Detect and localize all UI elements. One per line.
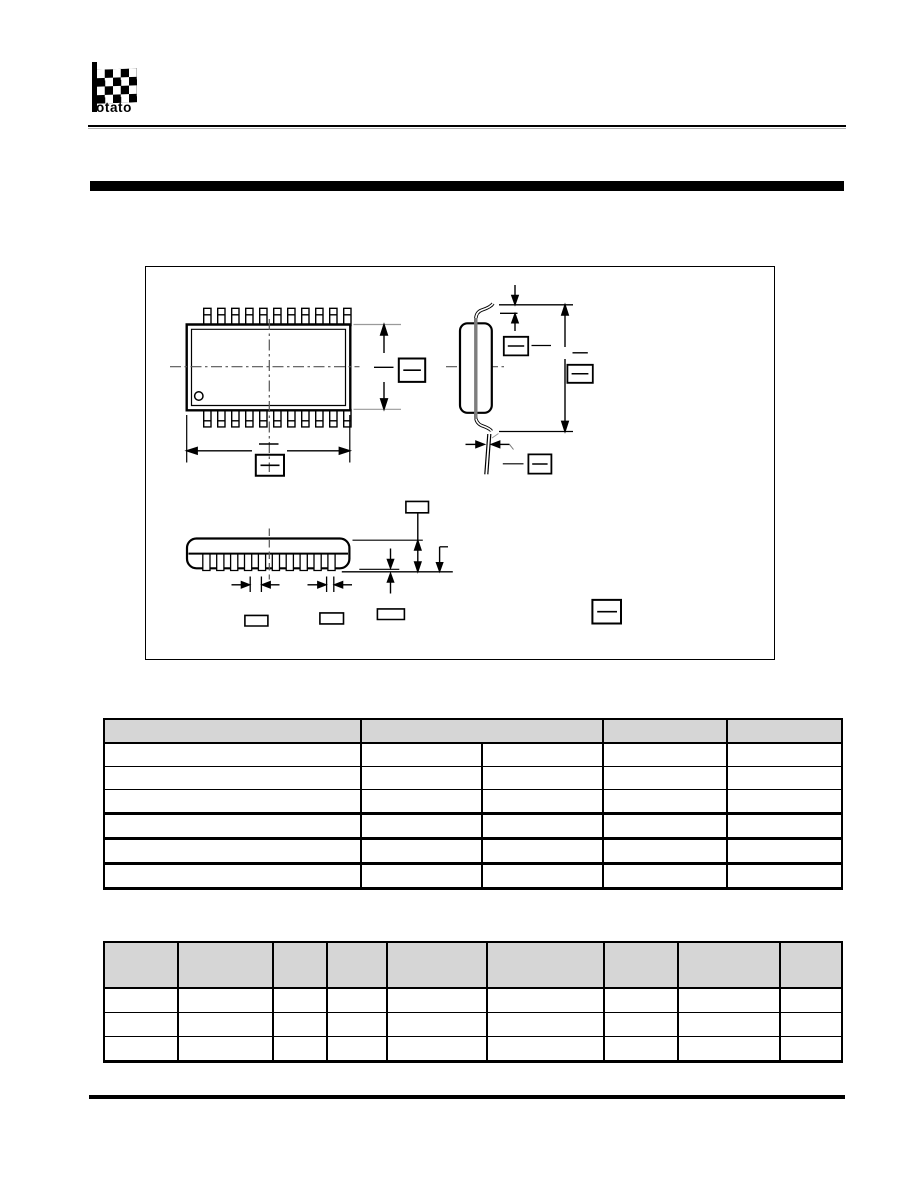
table-cell — [327, 988, 387, 1013]
table-row — [104, 1037, 842, 1062]
table-cell — [104, 814, 361, 839]
dim-body-thickness — [437, 547, 449, 572]
package-top-view — [170, 308, 360, 472]
arrowhead-left — [335, 582, 343, 588]
header-rule-shadow — [88, 128, 846, 129]
table-cell — [361, 743, 482, 767]
arrowhead-left — [187, 447, 198, 454]
table-cell — [678, 988, 780, 1013]
dim-label-box — [320, 613, 344, 624]
table-cell — [104, 767, 361, 790]
table-cell — [482, 839, 603, 864]
arrowhead-up — [562, 305, 569, 315]
table-row — [104, 839, 842, 864]
arrowhead-up — [381, 325, 388, 336]
table-cell — [361, 767, 482, 790]
lead-foot-detail — [466, 434, 514, 475]
table-cell — [780, 1037, 842, 1062]
table-cell — [387, 1013, 487, 1037]
table-cell — [727, 814, 842, 839]
table-cell — [482, 864, 603, 889]
table-cell — [727, 864, 842, 889]
table-cell — [603, 790, 727, 814]
ordering-table — [103, 941, 843, 1063]
table-cell — [604, 1013, 678, 1037]
table-row — [104, 864, 842, 889]
table-header-row — [104, 719, 842, 743]
arrowhead-down — [415, 562, 421, 572]
datasheet-page: { "logo": { "brand_suffix": "otato", "fl… — [0, 0, 918, 1188]
logo-wordmark: otato — [96, 100, 132, 115]
table-cell — [104, 864, 361, 889]
arrowhead-down — [512, 296, 518, 305]
arrowhead-down — [562, 421, 569, 431]
pin-row-top — [204, 308, 351, 325]
table-header-cell — [104, 942, 178, 988]
table-cell — [780, 988, 842, 1013]
dim-standoff — [387, 549, 393, 594]
arrowhead-right — [476, 441, 484, 447]
package-end-view — [446, 285, 593, 474]
dim-label-box — [406, 501, 429, 512]
table-cell — [603, 814, 727, 839]
table-cell — [603, 839, 727, 864]
table-cell — [482, 814, 603, 839]
table-cell — [387, 988, 487, 1013]
table-row — [104, 988, 842, 1013]
table-cell — [104, 839, 361, 864]
table-row — [104, 1013, 842, 1037]
pin-row-bottom — [204, 410, 351, 427]
section-title-bar — [90, 181, 844, 191]
table-row — [104, 814, 842, 839]
table-cell — [727, 790, 842, 814]
arrowhead-up — [415, 541, 421, 551]
table-cell — [604, 1037, 678, 1062]
table-header-cell — [327, 942, 387, 988]
table-cell — [727, 743, 842, 767]
checkered-flag-icon — [97, 68, 137, 103]
package-drawing-frame — [145, 266, 775, 660]
table-row — [104, 743, 842, 767]
table-cell — [327, 1013, 387, 1037]
table-cell — [482, 767, 603, 790]
footer-rule — [89, 1095, 845, 1099]
table-cell — [361, 814, 482, 839]
table-cell — [487, 1037, 604, 1062]
table-cell — [603, 864, 727, 889]
arrowhead-up — [387, 574, 393, 583]
table-cell — [361, 790, 482, 814]
arrowhead-left — [491, 441, 499, 447]
table-cell — [678, 1013, 780, 1037]
dim-pitch-2 — [308, 577, 353, 593]
table-cell — [487, 1013, 604, 1037]
arrowhead-down — [381, 399, 388, 410]
table-cell — [603, 767, 727, 790]
table-cell — [727, 767, 842, 790]
dim-callout-box — [399, 359, 425, 382]
table-row — [104, 767, 842, 790]
dim-callout-box — [504, 337, 551, 356]
arrowhead-down — [437, 563, 443, 572]
dim-callout-box — [503, 454, 552, 473]
table-cell — [178, 1037, 273, 1062]
table-header-cell — [361, 719, 603, 743]
dimensions-table — [103, 718, 843, 890]
table-header-row — [104, 942, 842, 988]
table-cell — [273, 1013, 327, 1037]
table-cell — [482, 743, 603, 767]
table-header-cell — [604, 942, 678, 988]
arrowhead-right — [241, 582, 249, 588]
table-cell — [780, 1013, 842, 1037]
table-cell — [727, 839, 842, 864]
package-side-view — [187, 501, 453, 626]
table-header-cell — [104, 719, 361, 743]
table-row — [104, 790, 842, 814]
arrowhead-right — [339, 447, 350, 454]
arrowhead-left — [262, 582, 270, 588]
dim-pitch-1 — [232, 577, 280, 593]
header-rule — [88, 125, 846, 127]
table-header-cell — [603, 719, 727, 743]
dim-overall-height — [562, 305, 593, 432]
table-header-cell — [387, 942, 487, 988]
table-cell — [104, 1037, 178, 1062]
table-cell — [104, 790, 361, 814]
table-cell — [104, 1013, 178, 1037]
table-cell — [327, 1037, 387, 1062]
dim-overall-height-side — [415, 513, 421, 572]
dim-width — [354, 325, 426, 410]
package-body-inner — [192, 329, 346, 405]
table-cell — [273, 988, 327, 1013]
table-header-cell — [780, 942, 842, 988]
table-cell — [487, 988, 604, 1013]
table-cell — [482, 790, 603, 814]
table-cell — [361, 839, 482, 864]
table-header-cell — [273, 942, 327, 988]
table-cell — [387, 1037, 487, 1062]
arrowhead-up — [512, 314, 518, 323]
table-cell — [104, 988, 178, 1013]
package-outline-drawing — [146, 267, 774, 659]
dim-callout-box — [567, 365, 592, 383]
table-cell — [361, 864, 482, 889]
table-cell — [603, 743, 727, 767]
dim-lead-thickness — [499, 285, 573, 331]
table-cell — [178, 1013, 273, 1037]
table-cell — [678, 1037, 780, 1062]
table-header-cell — [487, 942, 604, 988]
pin1-indicator — [195, 392, 203, 400]
dim-label-box — [245, 615, 268, 626]
table-cell — [178, 988, 273, 1013]
arrowhead-down — [387, 559, 393, 568]
table-header-cell — [178, 942, 273, 988]
table-header-cell — [678, 942, 780, 988]
table-cell — [604, 988, 678, 1013]
table-cell — [104, 743, 361, 767]
dim-label-box — [377, 609, 404, 620]
table-header-cell — [727, 719, 842, 743]
table-cell — [273, 1037, 327, 1062]
dim-callout-box — [592, 600, 621, 624]
arrowhead-right — [318, 582, 326, 588]
